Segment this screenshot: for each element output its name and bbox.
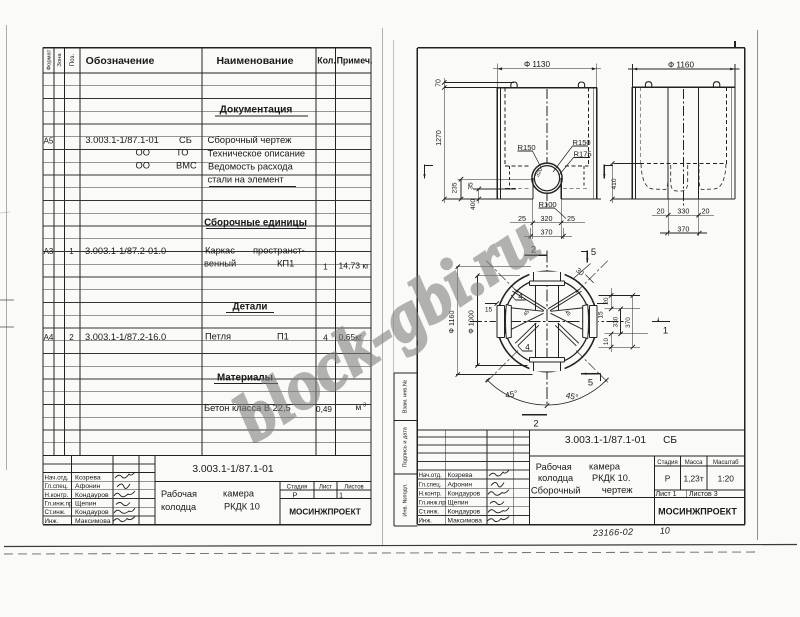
svg-text:25: 25: [567, 214, 575, 223]
svg-text:20: 20: [702, 207, 710, 216]
svg-text:Ведомость расхода: Ведомость расхода: [208, 162, 294, 172]
svg-text:Н.контр.: Н.контр.: [45, 492, 69, 499]
svg-text:Максимова: Максимова: [448, 518, 483, 525]
svg-text:Обозначение: Обозначение: [86, 55, 155, 67]
svg-text:14,73 кг: 14,73 кг: [339, 261, 370, 271]
svg-text:Взам. инв.№: Взам. инв.№: [403, 380, 409, 413]
svg-text:20: 20: [657, 207, 665, 216]
svg-text:15: 15: [485, 307, 493, 314]
svg-text:3.003.1-1/87.1-01: 3.003.1-1/87.1-01: [565, 435, 647, 446]
svg-text:Гл.спец.: Гл.спец.: [419, 482, 442, 488]
svg-text:колодца: колодца: [538, 473, 574, 483]
svg-text:м: м: [356, 402, 362, 412]
svg-text:Лист 1: Лист 1: [656, 491, 677, 498]
svg-text:Рабочая: Рабочая: [161, 489, 197, 499]
svg-text:Наименование: Наименование: [216, 55, 293, 67]
svg-text:А4: А4: [44, 333, 54, 342]
svg-text:3.003.1-1/87.2-16.0: 3.003.1-1/87.2-16.0: [85, 332, 166, 342]
svg-text:Поз.: Поз.: [69, 54, 76, 67]
svg-text:Сборочный чертеж: Сборочный чертеж: [208, 135, 293, 146]
svg-text:камера: камера: [589, 462, 621, 472]
svg-text:Н.контр.: Н.контр.: [419, 491, 442, 497]
svg-text:Инж.: Инж.: [419, 519, 433, 525]
svg-text:Козрева: Козрева: [75, 475, 101, 482]
svg-text:Максимова: Максимова: [75, 518, 111, 525]
svg-text:20: 20: [603, 297, 610, 305]
svg-text:1: 1: [323, 262, 328, 272]
svg-text:Техническое описание: Техническое описание: [208, 149, 306, 159]
svg-text:5: 5: [588, 377, 593, 388]
svg-text:410: 410: [611, 178, 618, 189]
svg-text:Листов 3: Листов 3: [689, 491, 718, 498]
svg-text:Лист: Лист: [319, 484, 332, 490]
svg-text:стали на элемент: стали на элемент: [208, 175, 285, 185]
svg-text:330: 330: [677, 207, 689, 216]
svg-text:5: 5: [591, 246, 596, 257]
svg-text:Кондауров: Кондауров: [75, 492, 109, 499]
svg-text:пространст-: пространст-: [253, 246, 305, 256]
svg-text:РКДК 10.: РКДК 10.: [592, 473, 630, 483]
svg-text:23166-02: 23166-02: [592, 527, 634, 538]
svg-text:чертеж: чертеж: [602, 484, 633, 495]
svg-text:Стадия: Стадия: [657, 460, 677, 466]
svg-text:35: 35: [468, 182, 475, 190]
svg-text:Петля: Петля: [205, 332, 231, 342]
svg-text:400: 400: [470, 199, 477, 210]
svg-text:Инв. №подл.: Инв. №подл.: [403, 483, 409, 517]
svg-text:Нач.отд.: Нач.отд.: [45, 475, 69, 482]
svg-text:КП1: КП1: [277, 259, 294, 269]
svg-text:Р: Р: [665, 474, 671, 484]
svg-text:Листов: Листов: [344, 484, 364, 490]
svg-text:Кол.: Кол.: [317, 56, 336, 66]
svg-text:Зона: Зона: [57, 53, 63, 67]
svg-text:Ст.инж.: Ст.инж.: [419, 510, 440, 516]
svg-text:Примеч.: Примеч.: [337, 56, 373, 66]
svg-text:Гл.инж.пр: Гл.инж.пр: [419, 500, 447, 506]
svg-text:10: 10: [603, 338, 610, 346]
svg-text:Афонин: Афонин: [448, 481, 473, 488]
svg-text:2: 2: [69, 333, 74, 342]
svg-text:ВМС: ВМС: [176, 161, 197, 171]
svg-text:1: 1: [69, 247, 74, 256]
svg-text:70: 70: [436, 79, 443, 87]
svg-text:3: 3: [363, 403, 366, 409]
svg-text:А3: А3: [44, 247, 54, 256]
svg-text:П1: П1: [277, 332, 289, 342]
svg-text:Рабочая: Рабочая: [536, 462, 572, 472]
svg-text:370: 370: [541, 228, 553, 237]
svg-text:ОО: ОО: [136, 148, 150, 158]
svg-text:Ф 1160: Ф 1160: [668, 61, 695, 70]
svg-text:Ст.инж.: Ст.инж.: [45, 509, 66, 516]
svg-text:Щепин: Щепин: [75, 501, 97, 508]
svg-text:Масштаб: Масштаб: [713, 460, 739, 466]
svg-text:330: 330: [613, 316, 620, 327]
svg-text:Сборочный: Сборочный: [531, 484, 581, 495]
svg-text:235: 235: [452, 182, 459, 193]
svg-text:Козрева: Козрева: [448, 472, 473, 479]
svg-text:СБ: СБ: [663, 435, 677, 446]
svg-text:370: 370: [625, 317, 632, 328]
svg-text:венный: венный: [204, 259, 236, 269]
svg-text:А5: А5: [44, 137, 54, 146]
svg-text:10: 10: [659, 525, 670, 536]
svg-text:колодца: колодца: [161, 502, 197, 512]
svg-text:Документация: Документация: [220, 105, 293, 116]
svg-text:1270: 1270: [436, 130, 443, 146]
svg-text:Нач.отд.: Нач.отд.: [419, 473, 443, 479]
svg-text:2: 2: [533, 418, 538, 429]
svg-text:3.003.1-1/87.2-01.0: 3.003.1-1/87.2-01.0: [85, 246, 166, 256]
svg-text:1,23т: 1,23т: [684, 474, 704, 484]
svg-text:МОСИНЖПРОЕКТ: МОСИНЖПРОЕКТ: [289, 508, 361, 517]
svg-text:Каркас: Каркас: [205, 246, 235, 256]
svg-text:3.003.1-1/87.1-01: 3.003.1-1/87.1-01: [192, 464, 274, 475]
svg-text:Детали: Детали: [233, 302, 268, 313]
svg-text:320: 320: [541, 214, 553, 223]
svg-text:1: 1: [663, 325, 668, 336]
svg-text:370: 370: [677, 225, 689, 234]
svg-text:Афонин: Афонин: [75, 483, 101, 490]
svg-text:камера: камера: [223, 489, 255, 499]
svg-text:1: 1: [339, 490, 343, 499]
svg-text:3.003.1-1/87.1-01: 3.003.1-1/87.1-01: [85, 135, 158, 145]
svg-text:Масса: Масса: [685, 460, 703, 466]
svg-text:15: 15: [598, 311, 605, 319]
svg-text:Кондауров: Кондауров: [448, 490, 481, 497]
svg-text:ТО: ТО: [176, 148, 189, 158]
svg-text:Кондауров: Кондауров: [448, 509, 481, 516]
svg-text:РКДК 10: РКДК 10: [224, 501, 260, 511]
svg-text:Гл.инж.пр: Гл.инж.пр: [45, 501, 73, 508]
svg-text:Гл.спец.: Гл.спец.: [45, 483, 69, 490]
svg-text:Инж.: Инж.: [45, 518, 59, 525]
svg-text:ОО: ОО: [136, 161, 150, 171]
svg-text:Ф 1130: Ф 1130: [524, 60, 551, 69]
svg-text:Р: Р: [293, 490, 298, 499]
svg-text:МОСИНЖПРОЕКТ: МОСИНЖПРОЕКТ: [658, 506, 737, 516]
svg-text:СБ: СБ: [179, 135, 192, 145]
svg-text:1:20: 1:20: [718, 474, 735, 484]
svg-text:Подпись и дата: Подпись и дата: [403, 426, 409, 467]
svg-text:Сборочные единицы: Сборочные единицы: [204, 218, 307, 229]
svg-text:Щепин: Щепин: [448, 499, 469, 506]
svg-text:Кондауров: Кондауров: [75, 509, 109, 516]
svg-text:Формат: Формат: [47, 49, 53, 70]
